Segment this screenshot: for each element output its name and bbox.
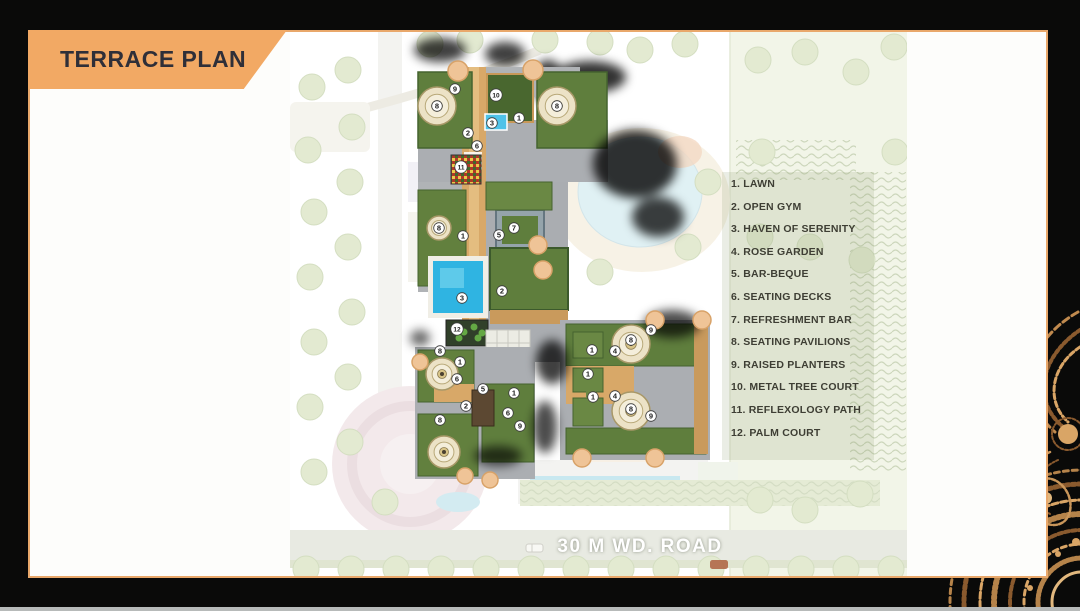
plan-marker-1: 1 [583, 369, 594, 380]
svg-text:8: 8 [438, 416, 442, 425]
svg-text:1: 1 [590, 346, 594, 355]
svg-text:9: 9 [453, 85, 457, 94]
plan-marker-8: 8 [552, 101, 563, 112]
plan-marker-1: 1 [587, 345, 598, 356]
plan-marker-11: 11 [455, 161, 467, 173]
svg-text:1: 1 [512, 389, 516, 398]
page-title: TERRACE PLAN [28, 30, 287, 88]
svg-text:11: 11 [458, 165, 465, 172]
svg-text:5: 5 [481, 385, 485, 394]
amenities-legend: 1. LAWN2. OPEN GYM3. HAVEN OF SERENITY4.… [731, 178, 906, 449]
svg-text:9: 9 [649, 412, 653, 421]
plan-marker-7: 7 [509, 223, 520, 234]
title-banner: TERRACE PLAN [28, 30, 287, 89]
svg-text:8: 8 [629, 336, 633, 345]
plan-marker-2: 2 [463, 128, 474, 139]
legend-item: 9. RAISED PLANTERS [731, 359, 906, 382]
svg-text:1: 1 [586, 370, 590, 379]
plan-marker-9: 9 [646, 411, 657, 422]
plan-marker-10: 10 [490, 89, 502, 101]
plan-marker-6: 6 [452, 374, 463, 385]
plan-marker-8: 8 [626, 404, 637, 415]
svg-text:2: 2 [500, 287, 504, 296]
legend-item: 5. BAR-BEQUE [731, 268, 906, 291]
legend-item: 3. HAVEN OF SERENITY [731, 223, 906, 246]
svg-text:8: 8 [438, 347, 442, 356]
svg-text:1: 1 [458, 358, 462, 367]
svg-text:10: 10 [492, 93, 500, 100]
svg-text:7: 7 [512, 224, 516, 233]
plan-marker-8: 8 [435, 415, 446, 426]
plan-marker-3: 3 [487, 118, 498, 129]
plan-marker-8: 8 [435, 346, 446, 357]
plan-marker-8: 8 [626, 335, 637, 346]
legend-item: 7. REFRESHMENT BAR [731, 314, 906, 337]
plan-marker-1: 1 [588, 392, 599, 403]
plan-marker-6: 6 [503, 408, 514, 419]
bottom-gray-strip [0, 607, 1080, 611]
svg-text:5: 5 [497, 231, 501, 240]
terrace-plan-image: 9810813261181573212816528169984111489 1.… [290, 32, 907, 576]
svg-text:2: 2 [464, 402, 468, 411]
svg-text:12: 12 [453, 327, 461, 334]
plan-marker-1: 1 [509, 388, 520, 399]
plan-marker-6: 6 [472, 141, 483, 152]
legend-item: 1. LAWN [731, 178, 906, 201]
svg-text:2: 2 [466, 129, 470, 138]
plan-marker-1: 1 [455, 357, 466, 368]
pavilion-circle [426, 358, 458, 390]
svg-text:1: 1 [461, 232, 465, 241]
road-label: 30 M WD. ROAD [530, 536, 750, 558]
svg-text:9: 9 [518, 422, 522, 431]
plan-marker-5: 5 [494, 230, 505, 241]
legend-item: 11. REFLEXOLOGY PATH [731, 404, 906, 427]
plan-marker-2: 2 [497, 286, 508, 297]
svg-text:8: 8 [555, 102, 559, 111]
plan-marker-8: 8 [434, 223, 445, 234]
svg-text:6: 6 [455, 375, 459, 384]
legend-item: 10. METAL TREE COURT [731, 381, 906, 404]
plan-marker-1: 1 [514, 113, 525, 124]
svg-text:3: 3 [490, 119, 494, 128]
svg-text:6: 6 [506, 409, 510, 418]
plan-marker-4: 4 [610, 391, 621, 402]
plan-marker-1: 1 [458, 231, 469, 242]
svg-text:9: 9 [649, 326, 653, 335]
plan-marker-5: 5 [478, 384, 489, 395]
svg-text:8: 8 [629, 405, 633, 414]
svg-text:6: 6 [475, 142, 479, 151]
legend-item: 6. SEATING DECKS [731, 291, 906, 314]
svg-text:8: 8 [435, 102, 439, 111]
plan-marker-9: 9 [646, 325, 657, 336]
plan-marker-9: 9 [515, 421, 526, 432]
plan-marker-12: 12 [451, 323, 463, 335]
svg-text:8: 8 [437, 224, 441, 233]
plan-marker-2: 2 [461, 401, 472, 412]
pavilion-circle [428, 436, 460, 468]
legend-item: 12. PALM COURT [731, 427, 906, 450]
plan-marker-3: 3 [457, 293, 468, 304]
slide: 9810813261181573212816528169984111489 1.… [28, 30, 1048, 578]
svg-text:1: 1 [517, 114, 521, 123]
plan-marker-9: 9 [450, 84, 461, 95]
legend-item: 4. ROSE GARDEN [731, 246, 906, 269]
svg-text:1: 1 [591, 393, 595, 402]
presentation-page: 9810813261181573212816528169984111489 1.… [0, 0, 1080, 611]
svg-text:3: 3 [460, 294, 464, 303]
legend-item: 2. OPEN GYM [731, 201, 906, 224]
plan-marker-4: 4 [610, 346, 621, 357]
plan-marker-8: 8 [432, 101, 443, 112]
legend-item: 8. SEATING PAVILIONS [731, 336, 906, 359]
